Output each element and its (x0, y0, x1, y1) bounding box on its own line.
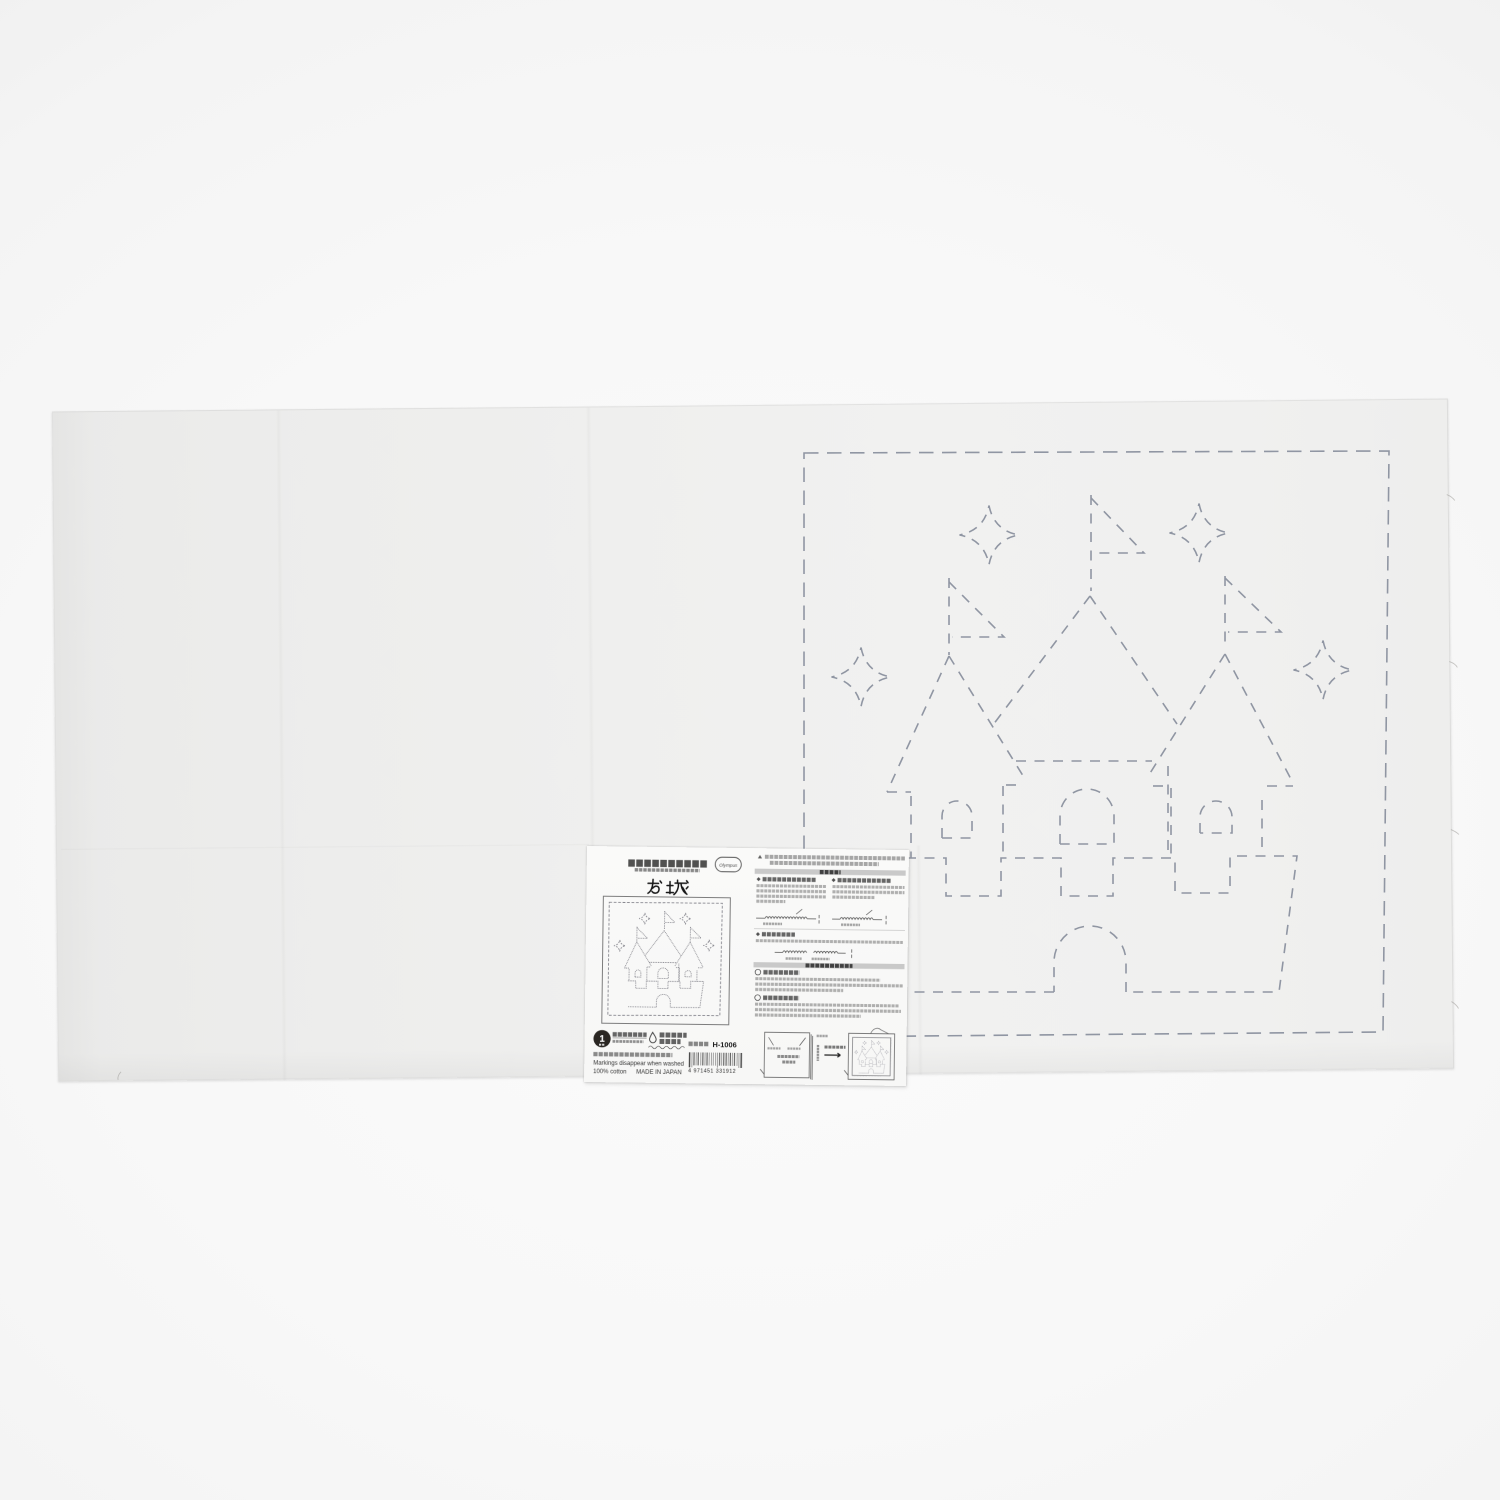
svg-text:Olympus: Olympus (719, 863, 738, 868)
svg-text:4 971451 331912: 4 971451 331912 (688, 1068, 736, 1075)
svg-text:100% cotton: 100% cotton (593, 1069, 626, 1075)
svg-text:Markings disappear when washed: Markings disappear when washed (593, 1061, 684, 1068)
svg-text:1: 1 (599, 1034, 605, 1045)
svg-text:H-1006: H-1006 (712, 1040, 736, 1049)
svg-text:MADE IN JAPAN: MADE IN JAPAN (636, 1070, 682, 1077)
